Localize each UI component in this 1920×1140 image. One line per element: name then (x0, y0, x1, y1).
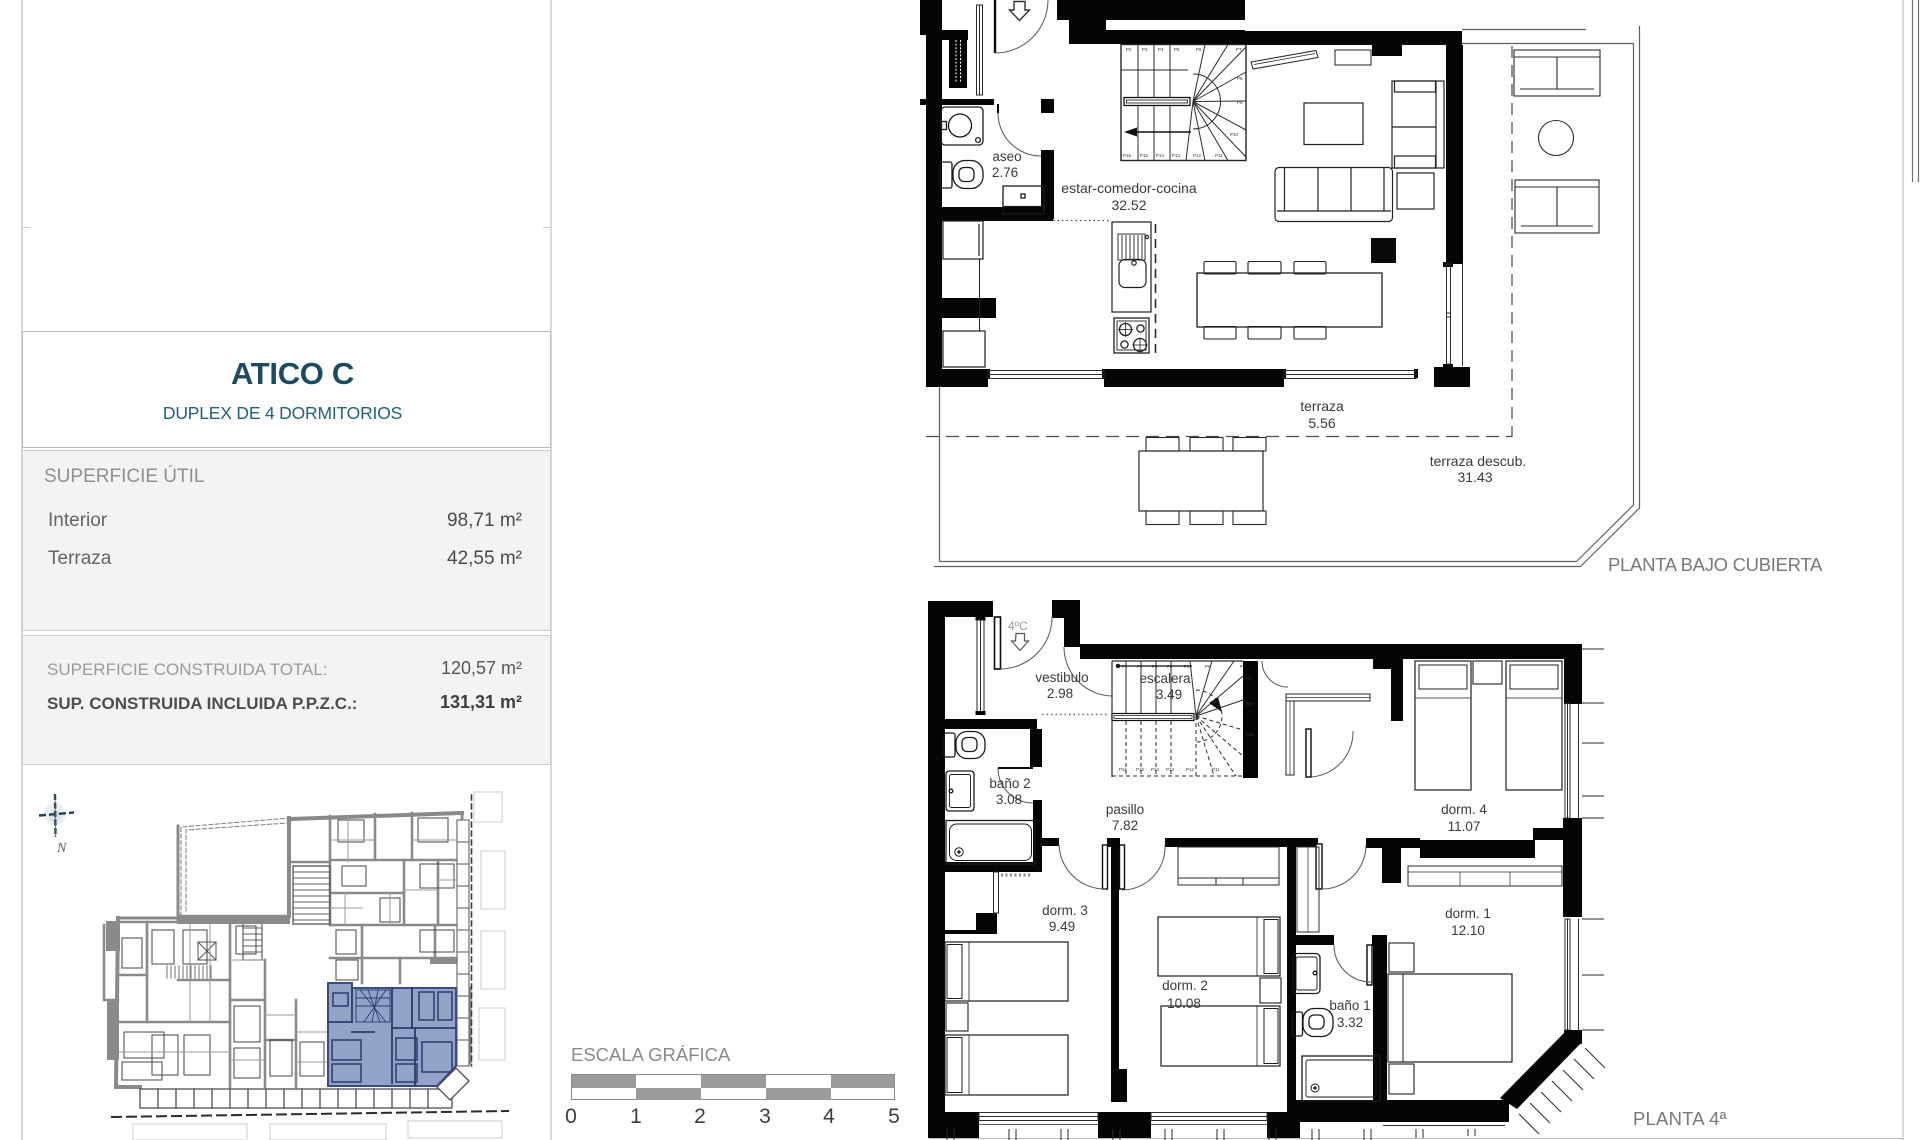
svg-text:N: N (56, 841, 67, 856)
svg-text:3.49: 3.49 (1156, 687, 1182, 702)
svg-text:P6: P6 (1205, 664, 1211, 669)
svg-text:P5: P5 (1174, 47, 1180, 52)
svg-text:dorm. 1: dorm. 1 (1445, 906, 1491, 921)
svg-text:10.08: 10.08 (1167, 996, 1201, 1011)
svg-text:2.76: 2.76 (992, 165, 1018, 180)
svg-text:PLANTA BAJO CUBIERTA: PLANTA BAJO CUBIERTA (1608, 554, 1823, 575)
svg-text:estar-comedor-cocina: estar-comedor-cocina (1061, 180, 1197, 196)
svg-text:P14: P14 (1151, 767, 1160, 772)
svg-text:11.07: 11.07 (1448, 819, 1481, 834)
svg-text:P9: P9 (1237, 100, 1243, 105)
svg-text:P5: P5 (1184, 664, 1190, 669)
svg-text:2.98: 2.98 (1047, 686, 1073, 701)
svg-text:P12: P12 (1193, 153, 1202, 158)
svg-text:P10: P10 (1246, 732, 1255, 737)
svg-text:P9: P9 (1246, 702, 1252, 707)
svg-text:32.52: 32.52 (1111, 197, 1146, 213)
svg-text:baño 2: baño 2 (989, 776, 1030, 791)
svg-text:dorm. 3: dorm. 3 (1042, 903, 1088, 918)
svg-text:dorm. 2: dorm. 2 (1162, 978, 1208, 993)
svg-text:3.32: 3.32 (1337, 1015, 1363, 1030)
svg-text:P2: P2 (1126, 47, 1132, 52)
svg-text:P6: P6 (1196, 47, 1202, 52)
svg-text:dorm. 4: dorm. 4 (1441, 802, 1487, 817)
svg-text:P7: P7 (1236, 47, 1242, 52)
svg-text:P11: P11 (1212, 767, 1220, 772)
svg-text:aseo: aseo (992, 149, 1021, 164)
svg-text:baño 1: baño 1 (1329, 998, 1370, 1013)
svg-text:P15: P15 (1140, 153, 1149, 158)
svg-text:P12: P12 (1186, 767, 1195, 772)
svg-text:P2: P2 (1137, 664, 1143, 669)
svg-text:P3: P3 (1142, 47, 1148, 52)
svg-text:P13: P13 (1166, 767, 1175, 772)
svg-text:P8: P8 (1237, 76, 1243, 81)
svg-text:P8: P8 (1246, 676, 1252, 681)
svg-text:P16: P16 (1123, 153, 1132, 158)
svg-text:P10: P10 (1230, 132, 1239, 137)
svg-text:P14: P14 (1156, 153, 1165, 158)
svg-text:31.43: 31.43 (1457, 469, 1492, 485)
svg-text:terraza: terraza (1300, 398, 1344, 414)
svg-text:P1: P1 (1122, 664, 1128, 669)
svg-text:P3: P3 (1152, 664, 1158, 669)
svg-text:P16: P16 (1119, 767, 1128, 772)
svg-text:escalera: escalera (1139, 671, 1191, 686)
svg-text:12.10: 12.10 (1451, 923, 1485, 938)
svg-text:terraza descub.: terraza descub. (1430, 453, 1527, 469)
svg-text:P4: P4 (1167, 664, 1173, 669)
svg-text:P13: P13 (1172, 153, 1181, 158)
svg-text:7.82: 7.82 (1112, 818, 1138, 833)
svg-text:PLANTA 4ª: PLANTA 4ª (1633, 1108, 1727, 1129)
svg-text:5.56: 5.56 (1308, 415, 1335, 431)
svg-text:vestibulo: vestibulo (1035, 670, 1088, 685)
svg-text:pasillo: pasillo (1106, 802, 1144, 817)
svg-text:P15: P15 (1136, 767, 1145, 772)
svg-text:9.49: 9.49 (1049, 919, 1075, 934)
svg-text:3.08: 3.08 (996, 792, 1022, 807)
svg-text:P4: P4 (1158, 47, 1164, 52)
svg-text:4ºC: 4ºC (1008, 619, 1028, 633)
svg-text:P11: P11 (1215, 153, 1223, 158)
svg-text:P7: P7 (1240, 664, 1246, 669)
